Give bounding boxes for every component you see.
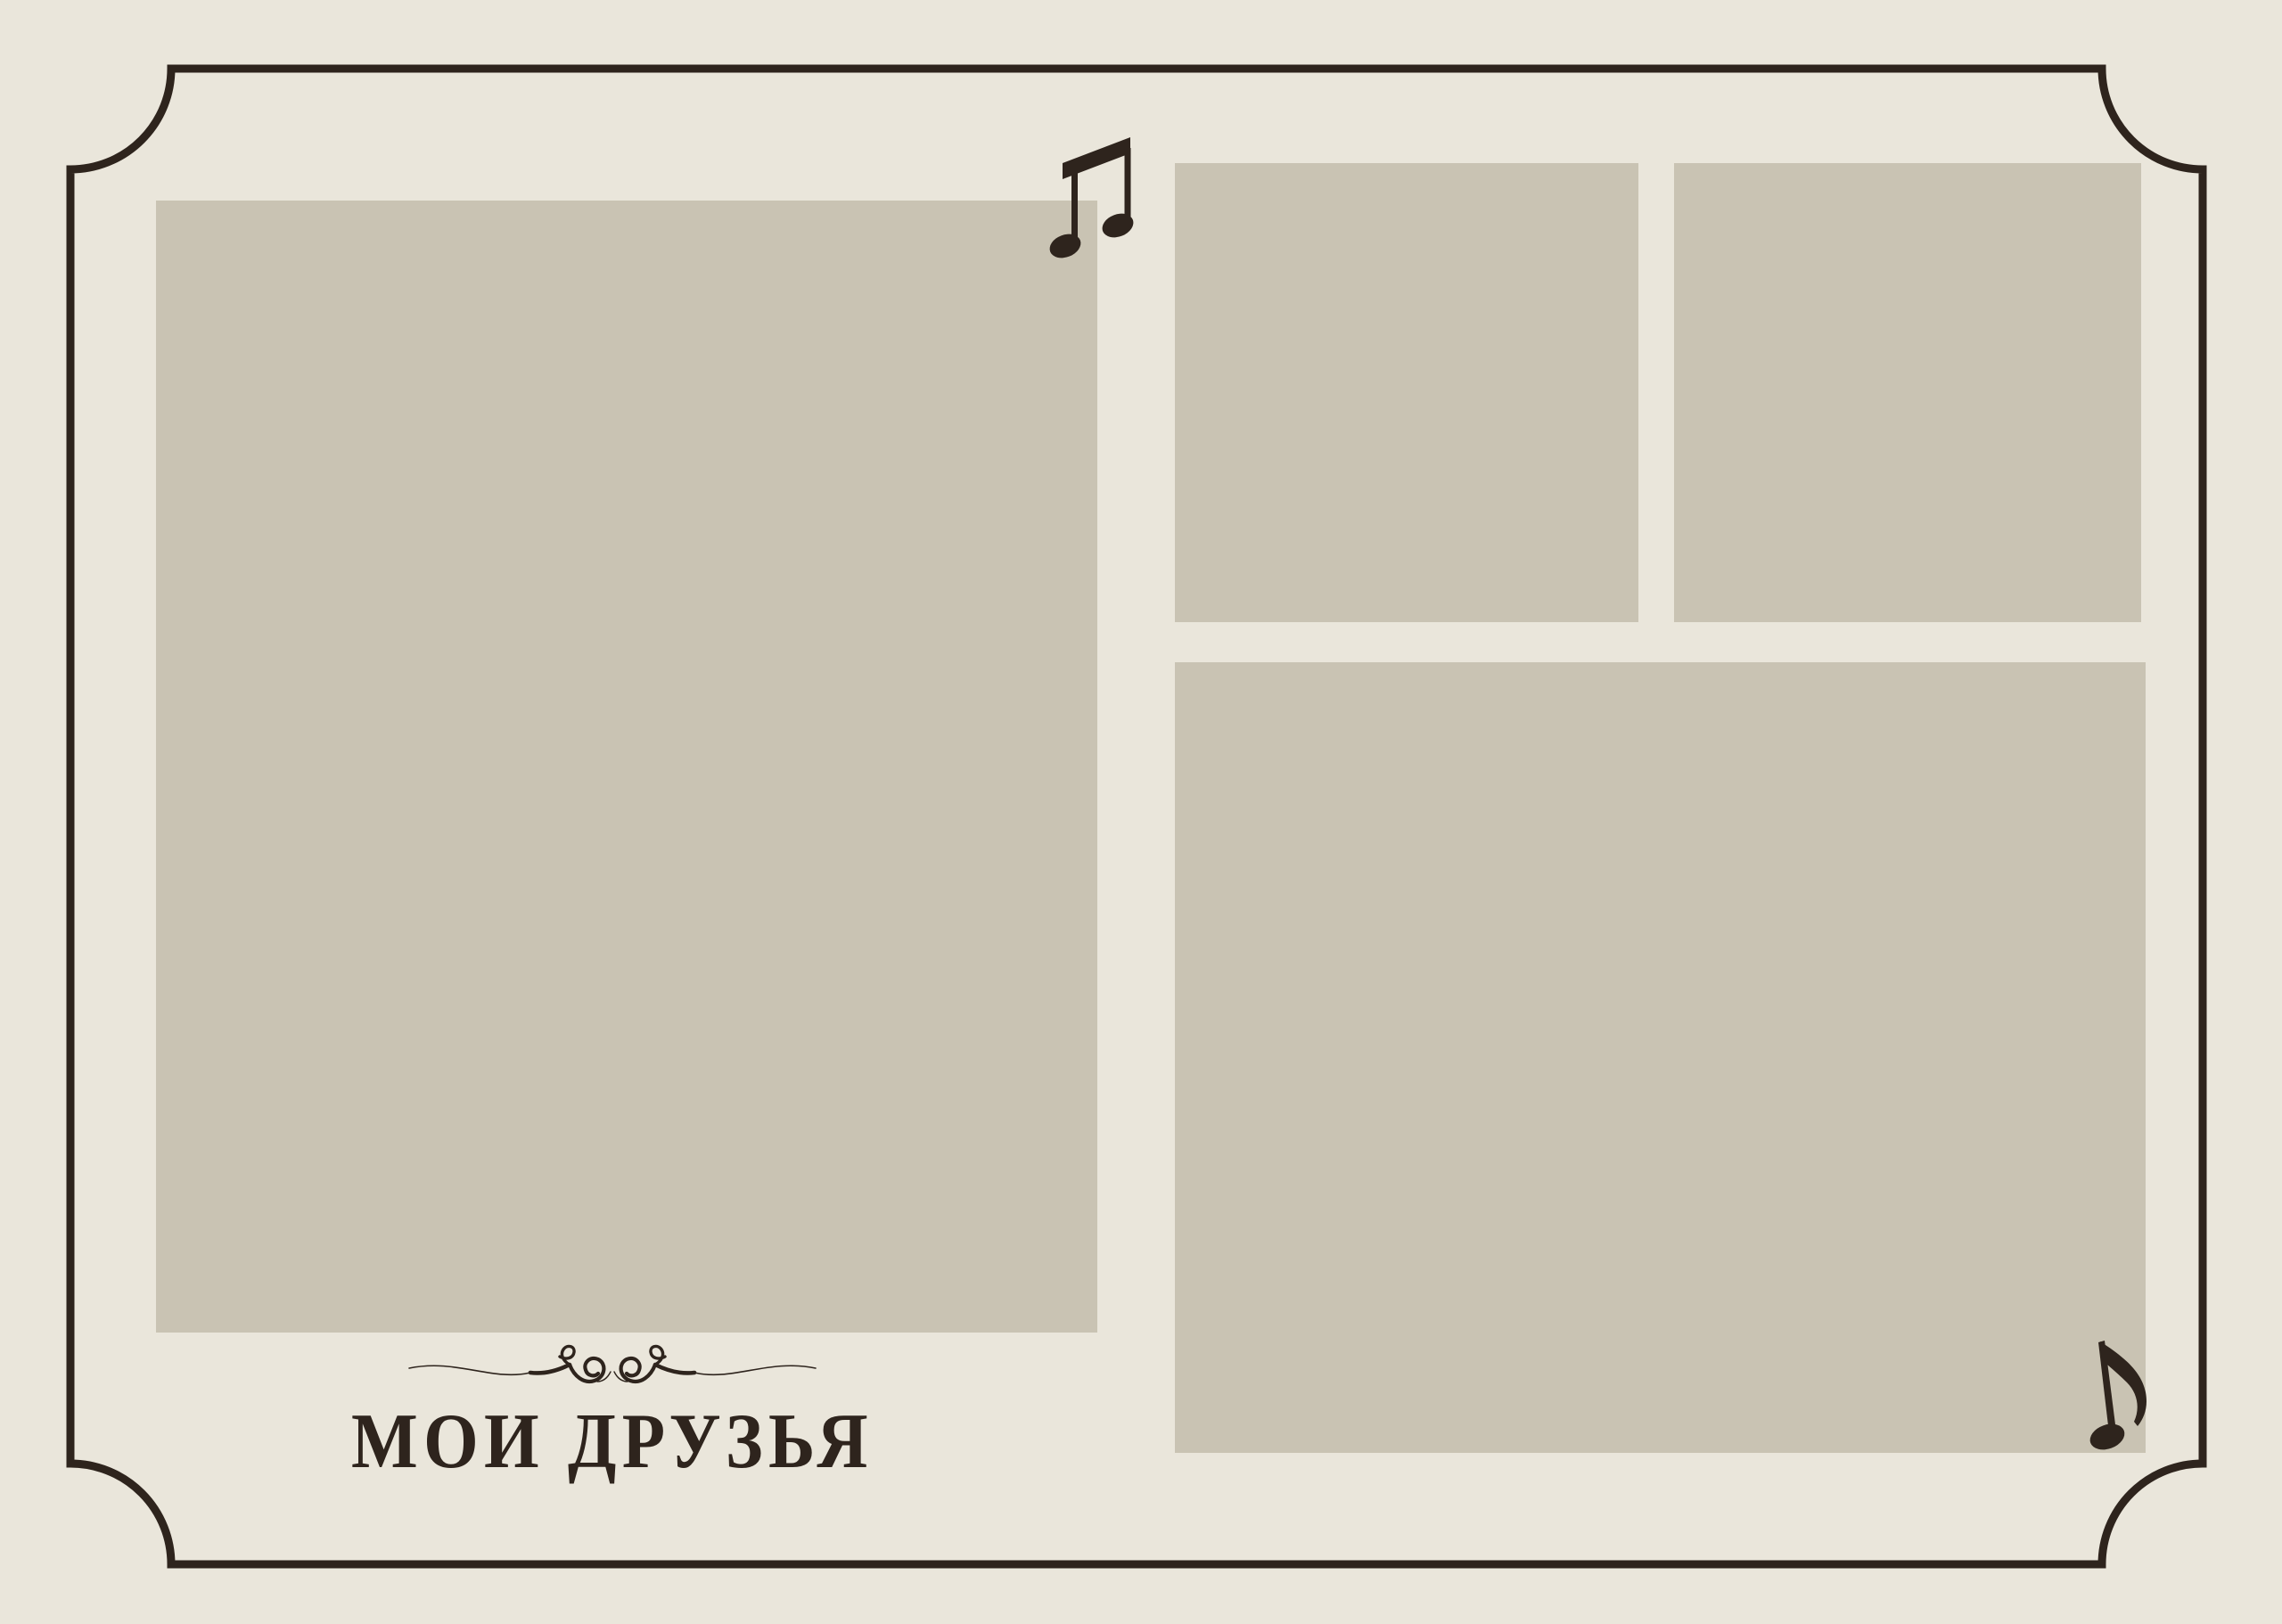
beamed-eighth-notes-icon xyxy=(1045,132,1147,267)
album-page: МОИ ДРУЗЬЯ xyxy=(0,0,2282,1624)
page-title: МОИ ДРУЗЬЯ xyxy=(291,1401,933,1483)
photo-slot-top-middle[interactable] xyxy=(1175,163,1638,622)
single-eighth-note-icon xyxy=(2086,1337,2164,1469)
flourish-divider xyxy=(407,1335,817,1407)
photo-slot-top-right[interactable] xyxy=(1674,163,2141,622)
photo-slot-left-large[interactable] xyxy=(156,201,1097,1333)
photo-slot-bottom-right-large[interactable] xyxy=(1175,662,2146,1453)
